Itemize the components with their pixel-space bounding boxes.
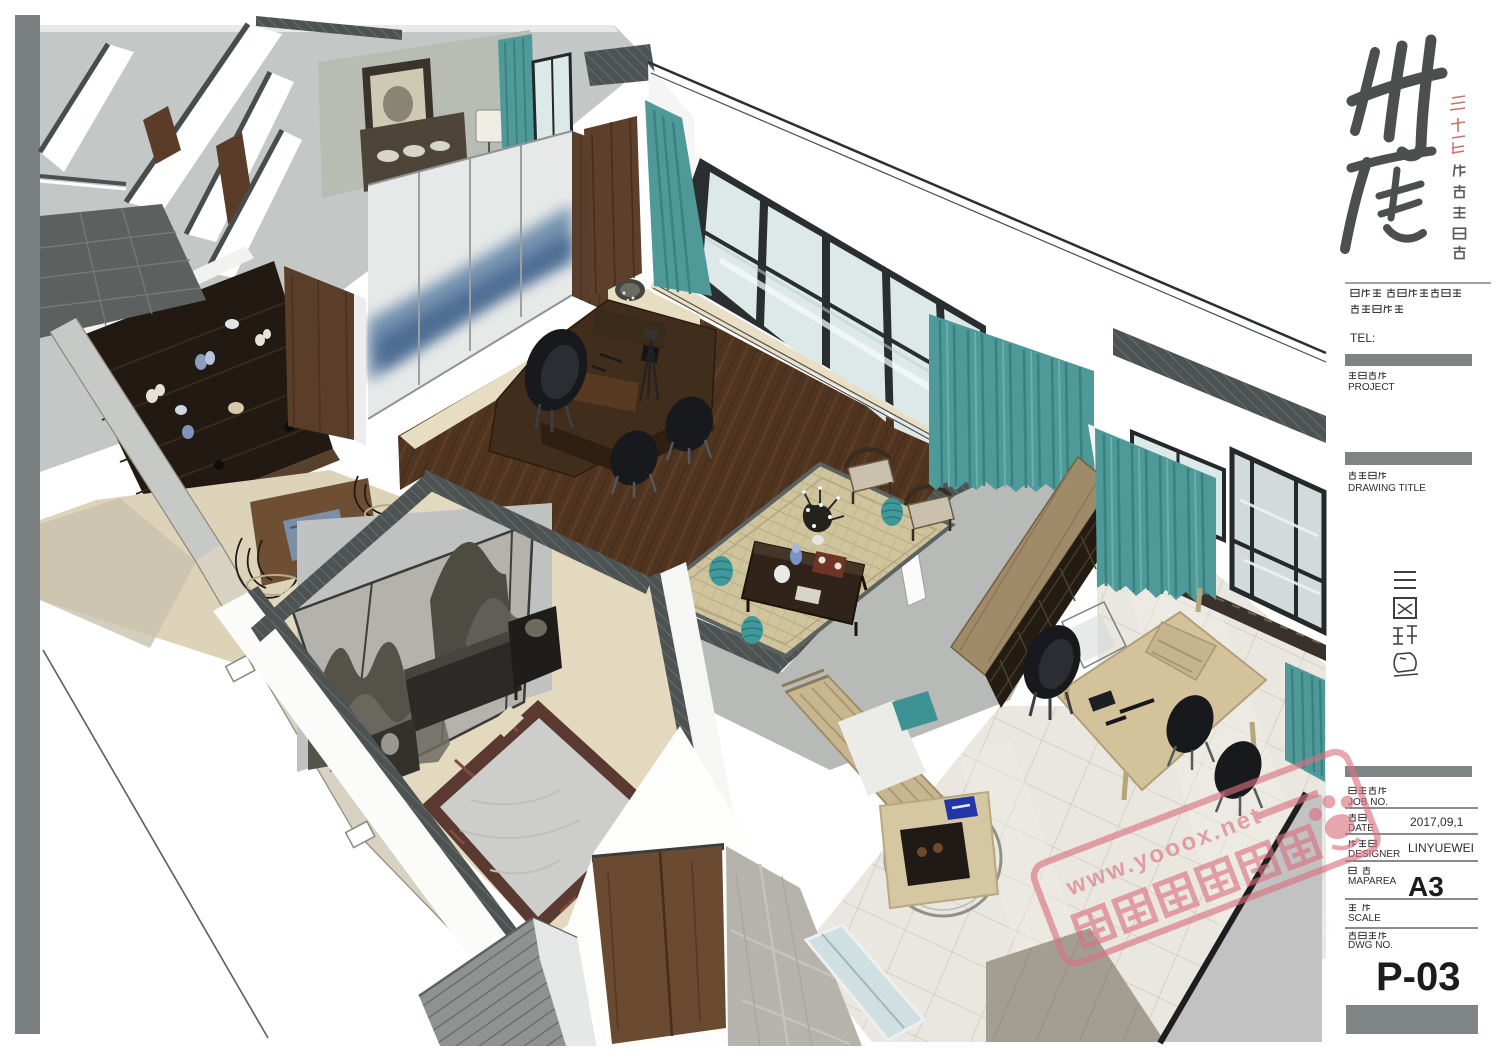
svg-text:LINYUEWEI: LINYUEWEI — [1408, 841, 1474, 855]
svg-text:SCALE: SCALE — [1348, 913, 1381, 924]
svg-text:DWG NO.: DWG NO. — [1348, 940, 1393, 951]
svg-text:P-03: P-03 — [1376, 955, 1461, 999]
svg-text:DRAWING TITLE: DRAWING TITLE — [1348, 483, 1426, 494]
svg-text:A3: A3 — [1408, 871, 1444, 902]
svg-text:PROJECT: PROJECT — [1348, 382, 1395, 393]
svg-text:2017,09,1: 2017,09,1 — [1410, 815, 1464, 829]
svg-text:TEL:: TEL: — [1350, 331, 1375, 345]
svg-text:MAPAREA: MAPAREA — [1348, 876, 1396, 887]
